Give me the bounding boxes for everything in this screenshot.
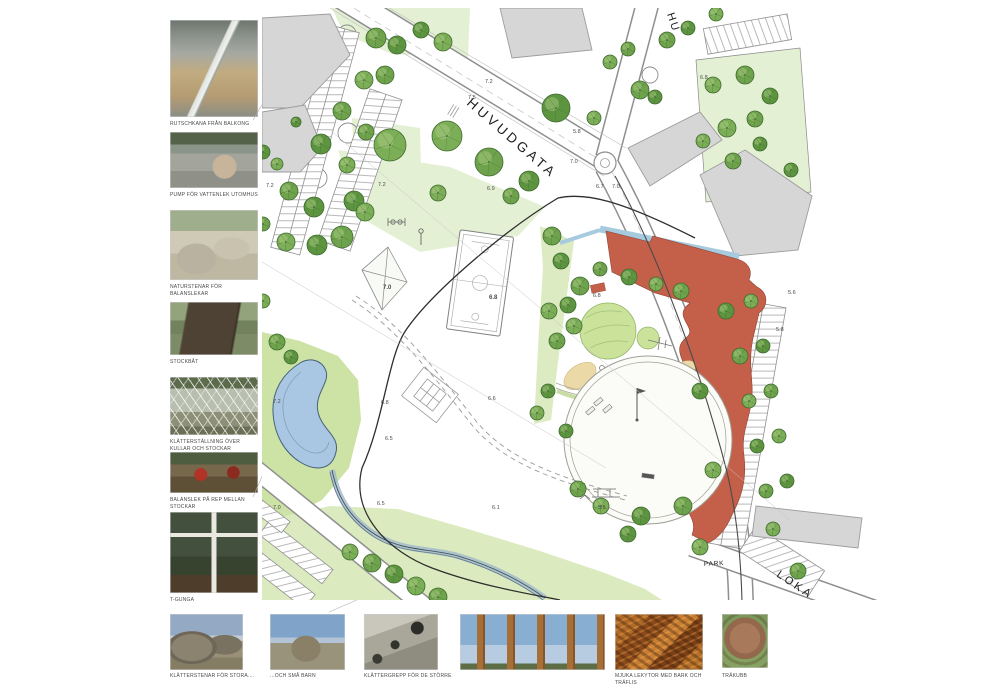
tree-icon [692,383,708,399]
tree-icon [736,66,754,84]
tree-icon [541,303,557,319]
tree-icon [571,277,589,295]
tree-icon [432,121,462,151]
tree-icon [519,171,539,191]
roundabout-center [601,159,610,168]
tree-icon [621,269,637,285]
tree-icon [374,129,406,161]
tree-icon [742,394,756,408]
tree-icon [673,283,689,299]
elevation-label: 7.0 [383,285,392,291]
tree-icon [780,474,794,488]
elevation-label: 6.8 [700,75,708,81]
elevation-label: 7.0 [570,159,578,165]
tree-icon [766,522,780,536]
tree-icon [674,497,692,515]
play-mound [580,303,659,359]
tree-icon [718,303,734,319]
tree-icon [256,217,270,231]
elevation-label: 6.6 [488,396,496,402]
tree-icon [648,90,662,104]
tree-icon [659,32,675,48]
tree-icon [620,526,636,542]
tree-icon [333,102,351,120]
tree-icon [753,137,767,151]
maze-structure [402,367,459,422]
tree-icon [587,111,601,125]
street-label: HU [664,11,682,34]
elevation-label: 7.2 [273,399,281,405]
tree-icon [530,406,544,420]
elevation-label: 7.2 [378,182,386,188]
tree-icon [705,462,721,478]
elevation-label: 6.7 [596,184,604,190]
tree-icon [732,348,748,364]
tree-icon [756,339,770,353]
tree-icon [271,158,283,170]
elevation-label: 5.6 [788,290,796,296]
elevation-label: 5.8 [573,129,581,135]
tree-icon [744,294,758,308]
tree-icon [541,384,555,398]
pyramid-climber [362,247,407,310]
tree-icon [549,333,565,349]
tree-icon [311,134,331,154]
tree-icon [429,588,447,606]
tree-icon [256,294,270,308]
street-label: PARK [704,560,725,568]
elevation-label: 7.2 [266,183,274,189]
elevation-label: 6.5 [377,501,385,507]
tree-icon [560,297,576,313]
tree-icon [553,253,569,269]
tree-icon [542,94,570,122]
tree-icon [566,318,582,334]
elevation-label: 5.8 [776,327,784,333]
tree-icon [413,22,429,38]
tree-icon [759,484,773,498]
tree-icon [559,424,573,438]
tree-icon [725,153,741,169]
tree-icon [747,111,763,127]
tree-icon [407,577,425,595]
tree-icon [388,36,406,54]
tree-icon [649,277,663,291]
tree-icon [366,28,386,48]
tree-icon [762,88,778,104]
tree-icon [718,119,736,137]
tree-icon [681,21,695,35]
circular-plaza [564,356,732,524]
site-plan: 7.27.57.27.26.97.06.77.05.87.06.86.86.85… [0,0,1000,700]
tree-icon [277,233,295,251]
tree-icon [385,565,403,583]
elevation-label: 7.0 [273,505,281,511]
elevation-label: 7.0 [612,184,620,190]
tree-icon [331,226,353,248]
tree-icon [355,71,373,89]
elevation-label: 5.5 [598,505,606,511]
tree-icon [570,481,586,497]
tree-icon [692,539,708,555]
tree-icon [269,334,285,350]
tree-icon [304,197,324,217]
tree-icon [363,554,381,572]
tree-icon [358,124,374,140]
tree-icon [784,163,798,177]
tree-icon [764,384,778,398]
elevation-label: 6.8 [593,293,601,299]
tree-icon [339,157,355,173]
tree-icon [750,439,764,453]
tree-icon [256,145,270,159]
tree-icon [632,507,650,525]
elevation-label: 6.8 [381,400,389,406]
tree-icon [621,42,635,56]
tree-icon [434,33,452,51]
tree-icon [307,235,327,255]
tree-icon [603,55,617,69]
tree-icon [631,81,649,99]
tree-icon [772,429,786,443]
tree-icon [503,188,519,204]
elevation-label: 6.8 [489,295,498,301]
tree-icon [291,117,301,127]
tree-icon [593,262,607,276]
tree-icon [709,7,723,21]
tree-icon [284,350,298,364]
tree-icon [376,66,394,84]
tree-icon [280,182,298,200]
elevation-label: 6.5 [385,436,393,442]
elevation-label: 7.2 [485,79,493,85]
tree-icon [356,203,374,221]
tree-icon [696,134,710,148]
tree-icon [430,185,446,201]
tree-icon [342,544,358,560]
elevation-label: 6.1 [492,505,500,511]
elevation-label: 6.9 [487,186,495,192]
tree-icon [475,148,503,176]
tree-icon [543,227,561,245]
